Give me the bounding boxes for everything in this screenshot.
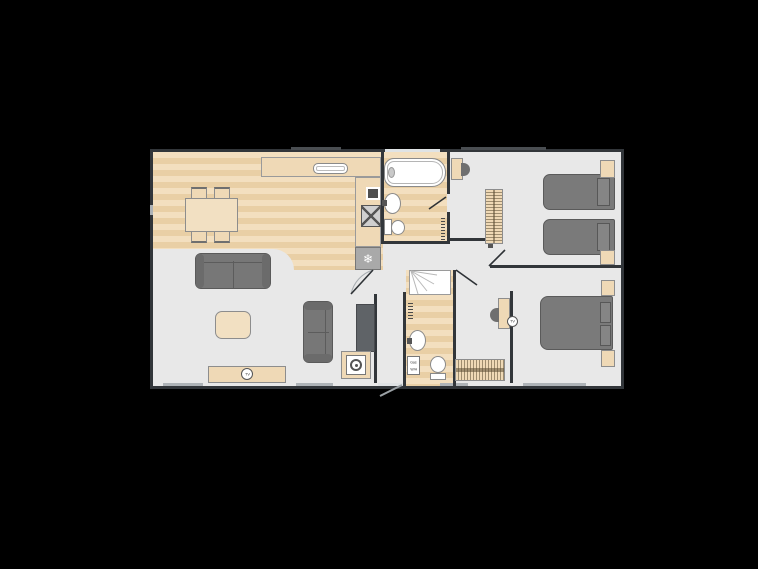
bathroom-door-leaf: [429, 197, 446, 209]
twin-door-leaf: [489, 250, 505, 266]
shower-spray-icon: [411, 271, 437, 294]
roof-vent-tab: [461, 147, 546, 150]
roof-vent-tab: [291, 147, 341, 150]
living-door-leaf: [351, 270, 373, 294]
master-door-leaf: [456, 270, 477, 285]
door-swing-overlay: [153, 152, 621, 386]
entrance-door-leaf: [380, 385, 402, 396]
floor-plan: ❄ TV Gas W/H: [150, 149, 624, 389]
